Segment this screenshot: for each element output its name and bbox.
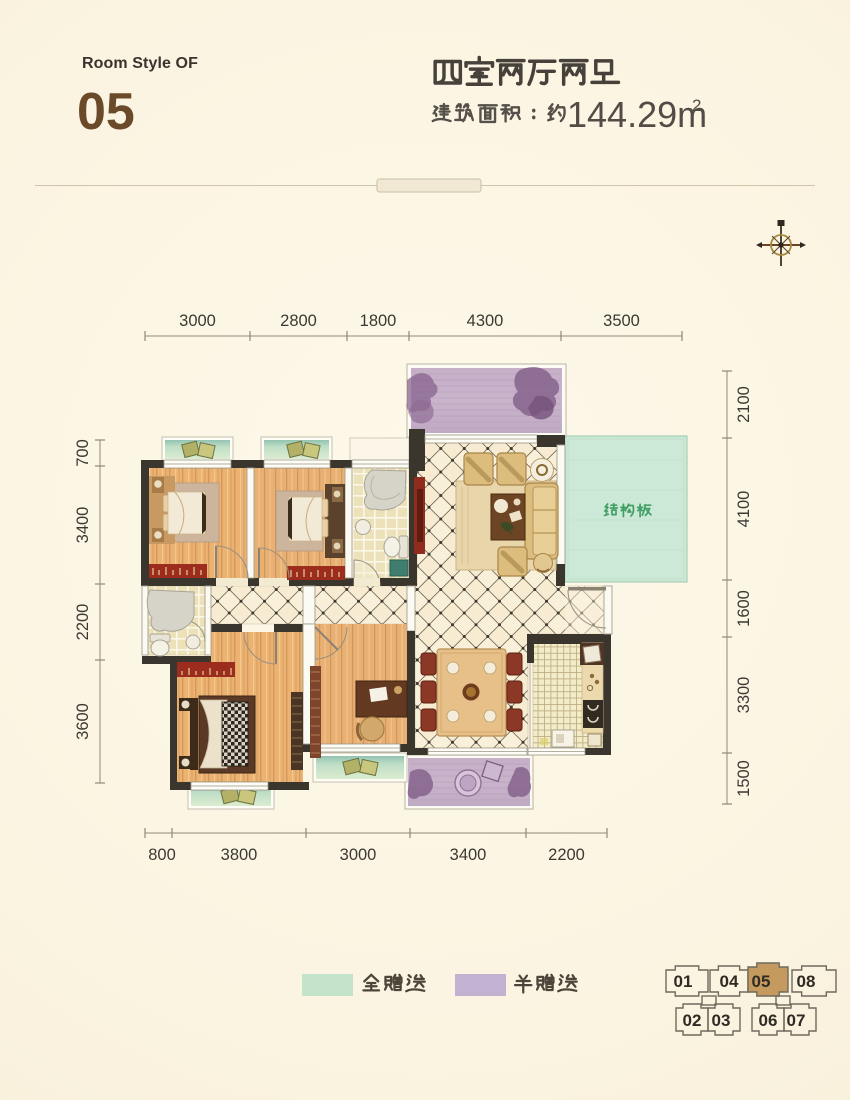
svg-text:4300: 4300 <box>467 312 504 330</box>
svg-text:4100: 4100 <box>735 491 753 528</box>
svg-text:1600: 1600 <box>735 590 753 627</box>
svg-text:3000: 3000 <box>340 846 377 864</box>
svg-text:3400: 3400 <box>450 846 487 864</box>
svg-text:3400: 3400 <box>74 507 92 544</box>
svg-text:3300: 3300 <box>735 677 753 714</box>
svg-text:2: 2 <box>692 96 701 115</box>
svg-text:3600: 3600 <box>74 703 92 740</box>
svg-text:06: 06 <box>759 1011 778 1030</box>
svg-text:3500: 3500 <box>603 312 640 330</box>
svg-text:2200: 2200 <box>548 846 585 864</box>
svg-text:03: 03 <box>712 1011 731 1030</box>
svg-text:3000: 3000 <box>179 312 216 330</box>
svg-text:2100: 2100 <box>735 386 753 423</box>
svg-text:1500: 1500 <box>735 760 753 797</box>
svg-text:08: 08 <box>797 972 816 991</box>
svg-text:2800: 2800 <box>280 312 317 330</box>
svg-text:144.29m: 144.29m <box>567 94 707 135</box>
svg-text:700: 700 <box>74 439 92 467</box>
svg-text:1800: 1800 <box>360 312 397 330</box>
svg-text:800: 800 <box>148 846 176 864</box>
svg-text:04: 04 <box>720 972 739 991</box>
svg-text:05: 05 <box>752 972 771 991</box>
svg-text:02: 02 <box>683 1011 702 1030</box>
svg-text:2200: 2200 <box>74 604 92 641</box>
svg-text:07: 07 <box>787 1011 806 1030</box>
svg-text:01: 01 <box>674 972 693 991</box>
svg-text:3800: 3800 <box>221 846 258 864</box>
